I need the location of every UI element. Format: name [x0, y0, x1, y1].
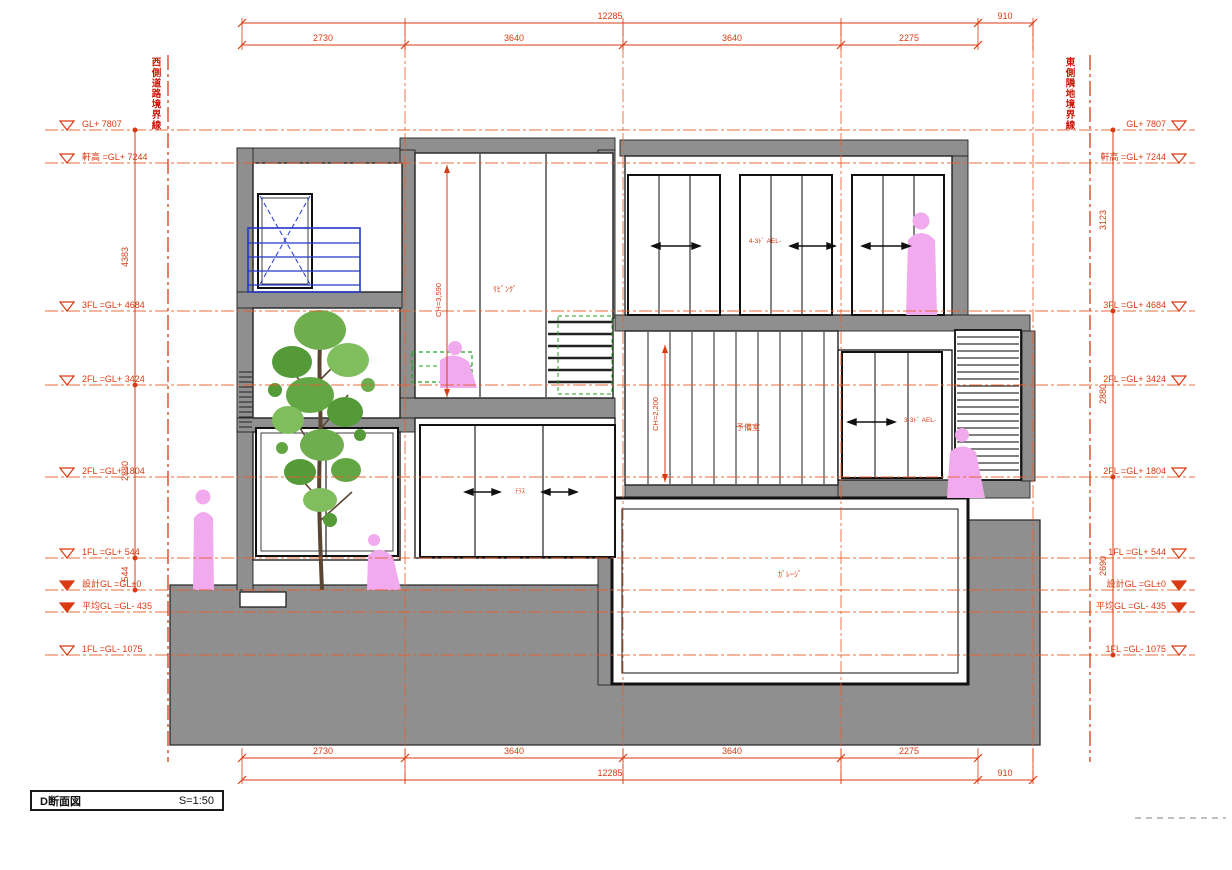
slab-2f-living: [400, 398, 615, 418]
roof-left: [237, 148, 402, 163]
ch-living-label: CH=3,590: [434, 283, 443, 317]
level-right-7244: 軒高 =GL+ 7244: [1100, 151, 1166, 162]
dim-top-seg4: 2275: [899, 33, 919, 43]
dim-top-overall: 12285: [597, 11, 622, 21]
wall-right: [952, 156, 968, 316]
window-1f-label: ﾃﾗｽ: [515, 487, 526, 495]
level-right-minus1075: 1FL =GL- 1075: [1106, 644, 1166, 654]
level-left-gl0: 設計GL =GL±0: [82, 578, 141, 589]
boundary-left-label: 西側道路境界線: [150, 57, 160, 131]
drawing-scale: S=1:50: [179, 795, 214, 807]
level-left-1804: 2FL =GL+ 1804: [82, 466, 145, 476]
room-living-label: ﾘﾋﾞﾝｸﾞ: [493, 285, 517, 294]
dim-top: 12285 910 2730 3640 3640 2275: [238, 11, 1037, 50]
dim-right-2690: 2690: [1098, 556, 1108, 576]
dim-bottom-seg2: 3640: [504, 746, 524, 756]
dim-right-3123: 3123: [1098, 210, 1108, 230]
level-left-minus435: 平均GL =GL- 435: [82, 600, 152, 611]
room-spare-label: 予備室: [736, 422, 760, 432]
garage: [612, 498, 968, 684]
section-drawing: 12285 910 2730 3640 3640 2275 2730 3640 …: [0, 0, 1232, 870]
garage-outer: [612, 498, 968, 684]
dim-chain-right: 3123 2880 2690: [1098, 128, 1116, 658]
level-left-4684: 3FL =GL+ 4684: [82, 300, 145, 310]
ch-spare-label: CH=2,200: [651, 397, 660, 431]
slab-3f-left: [237, 292, 402, 308]
wall-left: [237, 148, 253, 590]
level-right-minus435: 平均GL =GL- 435: [1096, 600, 1166, 611]
dim-bottom-seg3: 3640: [722, 746, 742, 756]
dim-bottom-seg4: 2275: [899, 746, 919, 756]
boundary-right-label: 東側隣地境界線: [1064, 57, 1074, 131]
level-left-3424: 2FL =GL+ 3424: [82, 374, 145, 384]
dim-bottom-seg1: 2730: [313, 746, 333, 756]
level-left-7244: 軒高 =GL+ 7244: [82, 151, 148, 162]
roof-middle: [400, 138, 615, 153]
dim-bottom-overall: 12285: [597, 768, 622, 778]
level-right-3424: 2FL =GL+ 3424: [1103, 374, 1166, 384]
level-right-7807: GL+ 7807: [1126, 119, 1166, 129]
roof-right: [620, 140, 968, 156]
window-2f-label: 3-3ﾄﾞ AEL-: [904, 416, 936, 424]
level-right-4684: 3FL =GL+ 4684: [1103, 300, 1166, 310]
dim-left-4383: 4383: [120, 247, 130, 267]
level-labels-left: GL+ 7807 軒高 =GL+ 7244 3FL =GL+ 4684 2FL …: [60, 119, 152, 655]
room-garage-label: ｶﾞﾚｰｼﾞ: [778, 570, 802, 579]
window-2f-right: [842, 352, 942, 478]
window-3f-unit1: [628, 175, 720, 315]
level-left-minus1075: 1FL =GL- 1075: [82, 644, 142, 654]
window-3f-label: 4-3ﾄﾞ AEL-: [749, 237, 781, 245]
dim-bottom-910: 910: [997, 768, 1012, 778]
dim-top-seg3: 3640: [722, 33, 742, 43]
level-right-gl0: 設計GL =GL±0: [1107, 578, 1166, 589]
title-block: D断面図 S=1:50: [30, 790, 224, 811]
dim-right-2880: 2880: [1098, 384, 1108, 404]
window-3f-unit2: [740, 175, 832, 315]
dim-top-seg2: 3640: [504, 33, 524, 43]
level-labels-right: GL+ 7807 軒高 =GL+ 7244 3FL =GL+ 4684 2FL …: [1096, 119, 1186, 655]
entry-step: [240, 592, 286, 607]
section-drawing-canvas: 12285 910 2730 3640 3640 2275 2730 3640 …: [0, 0, 1232, 870]
slab-3f-right: [615, 315, 1030, 331]
dim-top-910: 910: [997, 11, 1012, 21]
level-left-544: 1FL =GL+ 544: [82, 547, 140, 557]
level-right-1804: 2FL =GL+ 1804: [1103, 466, 1166, 476]
person-standing-left: [193, 490, 214, 591]
dim-top-seg1: 2730: [313, 33, 333, 43]
drawing-title: D断面図: [40, 793, 81, 809]
slab-2f-right: [838, 480, 1030, 498]
dim-bottom: 2730 3640 3640 2275 12285 910: [238, 746, 1037, 784]
dim-chain-left: 4383 2880 544: [120, 128, 138, 593]
level-left-7807: GL+ 7807: [82, 119, 122, 129]
level-right-544: 1FL =GL+ 544: [1108, 547, 1166, 557]
